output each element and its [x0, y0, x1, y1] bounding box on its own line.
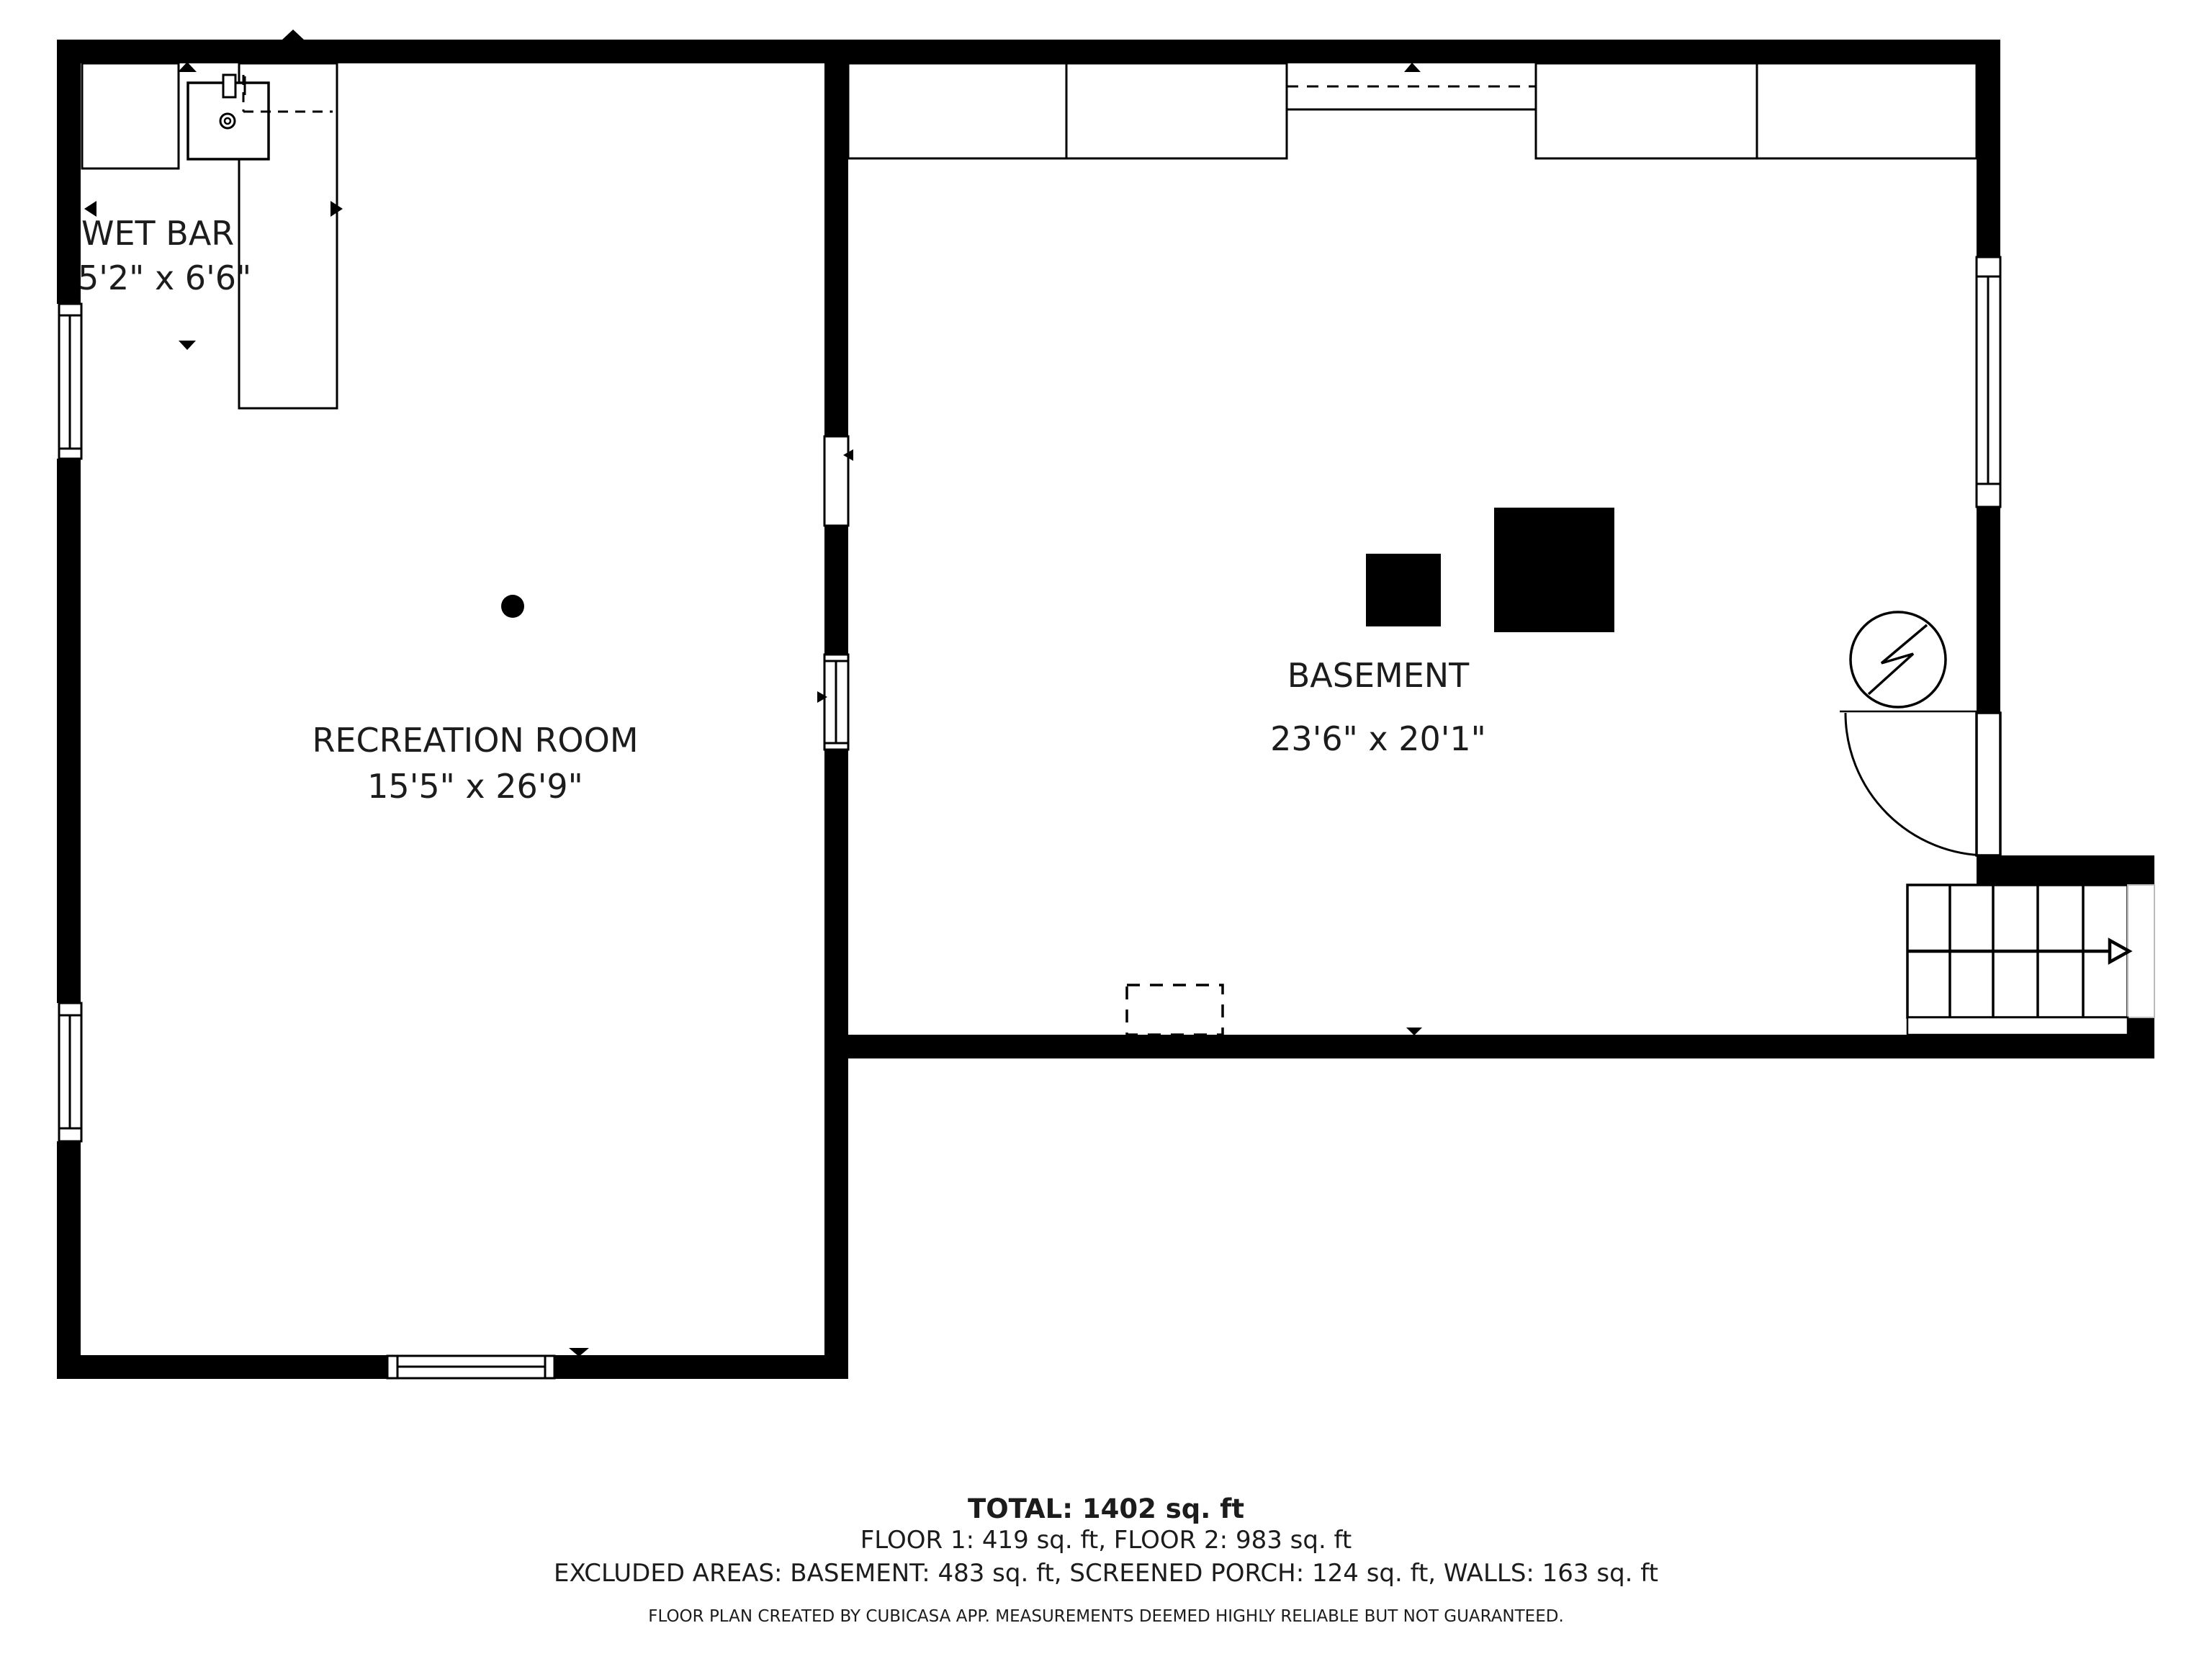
wall-top	[57, 40, 2000, 63]
wall-middle-upper	[824, 40, 848, 436]
wall-left-lower	[57, 1141, 81, 1379]
recreation-room-label: RECREATION ROOM	[312, 721, 638, 760]
walls	[57, 40, 2154, 1379]
counter-top-left	[82, 63, 179, 168]
window-left-upper	[59, 304, 81, 459]
wall-stair-corner-block	[2128, 1017, 2154, 1058]
floorplan-page: WET BAR 5'2" x 6'6" RECREATION ROOM 15'5…	[0, 0, 2212, 1659]
recreation-room-dims: 15'5" x 26'9"	[367, 767, 583, 806]
wall-basement-bottom	[824, 1035, 2154, 1058]
marker-down-basement-icon	[1406, 1028, 1422, 1035]
window-middle-wall	[824, 655, 848, 750]
summary-excluded: EXCLUDED AREAS: BASEMENT: 483 sq. ft, SC…	[554, 1559, 1658, 1588]
electrical-meter-icon	[1851, 612, 1946, 707]
window-left-lower	[59, 1003, 81, 1141]
window-right-wall	[1977, 257, 2000, 507]
wet-bar-dims: 5'2" x 6'6"	[78, 258, 251, 297]
wall-stair-top	[1977, 855, 2154, 885]
cabinet	[1536, 63, 1757, 158]
opening-markers	[84, 30, 1422, 1357]
marker-up-icon	[178, 62, 197, 72]
faucet-icon	[223, 75, 235, 97]
cabinet	[1757, 63, 1977, 158]
door-right-wall	[1840, 711, 2000, 855]
basement-label: BASEMENT	[1287, 656, 1470, 695]
ceiling-point-icon	[501, 595, 524, 618]
stairs-up-icon	[1907, 885, 2154, 1035]
summary-total: TOTAL: 1402 sq. ft	[968, 1493, 1244, 1524]
floorplan-canvas: WET BAR 5'2" x 6'6" RECREATION ROOM 15'5…	[0, 0, 2212, 1659]
cabinet	[848, 63, 1066, 158]
wall-middle-lower	[824, 750, 848, 1379]
wall-middle-mid	[824, 526, 848, 655]
marker-up-exterior-icon	[282, 30, 304, 40]
wall-right-upper	[1977, 40, 2000, 257]
stair-threshold	[1907, 1017, 2128, 1035]
wet-bar-label: WET BAR	[81, 214, 234, 253]
door-leaf	[1977, 713, 2000, 855]
summary-disclaimer: FLOOR PLAN CREATED BY CUBICASA APP. MEAS…	[648, 1607, 1564, 1626]
door-swing-arc	[1845, 713, 1988, 855]
sink-icon	[188, 75, 269, 159]
window-rec-bottom	[387, 1356, 554, 1378]
utility-unit-small	[1366, 554, 1441, 626]
wall-left-middle	[57, 459, 81, 1003]
marker-down-icon	[179, 341, 196, 350]
dashed-feature-box	[1127, 985, 1223, 1035]
basement-dims: 23'6" x 20'1"	[1270, 719, 1486, 758]
marker-up-basement-icon	[1404, 63, 1421, 72]
utility-unit-large	[1494, 508, 1614, 632]
wall-rec-bottom-left	[57, 1355, 387, 1379]
door-opening-middle-wall	[824, 436, 848, 526]
summary-floors: FLOOR 1: 419 sq. ft, FLOOR 2: 983 sq. ft	[860, 1526, 1352, 1555]
cabinet	[1066, 63, 1287, 158]
wall-rec-bottom-right	[554, 1355, 848, 1379]
basement-cabinets	[848, 63, 1977, 158]
windows	[59, 257, 2000, 1378]
wall-right-mid	[1977, 507, 2000, 713]
